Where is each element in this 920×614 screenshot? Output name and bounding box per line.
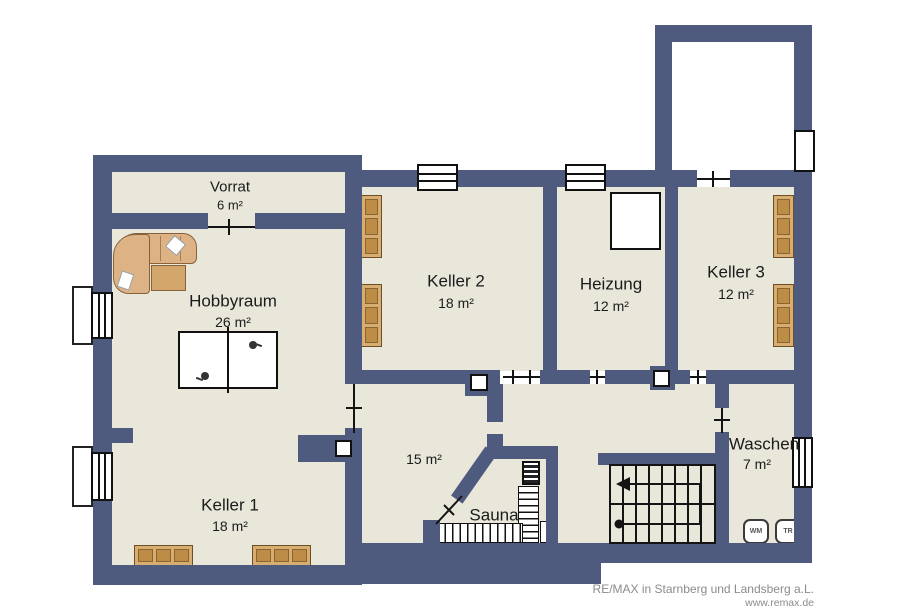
wall-sauna-right bbox=[546, 446, 558, 543]
room-label-vorrat: Vorrat bbox=[210, 180, 250, 195]
shelf-unit bbox=[134, 545, 193, 566]
wall-hall-top-b bbox=[540, 370, 590, 384]
wall-keller3-top-a bbox=[672, 170, 697, 187]
boiler-unit bbox=[610, 192, 661, 250]
wall-hall-top-d bbox=[675, 370, 690, 384]
shelf-unit bbox=[361, 195, 382, 258]
room-area-keller1: 18 m² bbox=[212, 519, 248, 533]
light-well bbox=[72, 286, 93, 345]
room-label-keller3: Keller 3 bbox=[707, 264, 765, 281]
shelf-unit bbox=[252, 545, 311, 566]
room-label-waschen: Waschen bbox=[729, 436, 799, 453]
wall-outer-bottom-right bbox=[601, 543, 812, 563]
room-area-keller2: 18 m² bbox=[438, 296, 474, 310]
wall-outer-bottom-mid bbox=[345, 543, 601, 584]
room-area-heizung: 12 m² bbox=[593, 299, 629, 313]
wall-keller2-heizung bbox=[543, 187, 557, 370]
wall-stairs-top bbox=[598, 453, 717, 465]
footer-branding: RE/MAX in Starnberg und Landsberg a.L. w… bbox=[593, 582, 814, 610]
sauna-oven bbox=[522, 461, 540, 485]
wall-keller3-top-b bbox=[730, 170, 794, 187]
light-well bbox=[72, 446, 93, 507]
wall-waschen-left-a bbox=[715, 384, 729, 408]
wall-outer-bottom-left bbox=[93, 565, 362, 585]
wall-heizung-keller3 bbox=[665, 187, 678, 370]
shelf-unit bbox=[361, 284, 382, 347]
wall-stub-left bbox=[110, 428, 133, 443]
duct-square bbox=[470, 374, 488, 391]
wall-hall-top-a bbox=[345, 370, 465, 384]
window-top-1 bbox=[417, 164, 458, 191]
room-label-sauna: Sauna bbox=[469, 507, 518, 524]
wall-sauna-entry-stub bbox=[423, 520, 440, 545]
table-tennis-net-line bbox=[227, 327, 229, 393]
dryer-label: TR bbox=[783, 528, 792, 535]
room-area-waschen: 7 m² bbox=[743, 457, 771, 471]
window-top-2 bbox=[565, 164, 606, 191]
window-left-2 bbox=[91, 452, 113, 501]
room-area-keller3: 12 m² bbox=[718, 287, 754, 301]
wall-sauna-left-a bbox=[487, 384, 503, 422]
wall-tower-top bbox=[655, 25, 812, 42]
wall-hall-top-e bbox=[706, 370, 794, 384]
duct-square bbox=[653, 370, 670, 387]
wall-vorrat-bottom-b bbox=[255, 213, 345, 229]
wall-tower-left bbox=[655, 25, 672, 187]
wall-hall-top-c bbox=[605, 370, 650, 384]
room-label-hobbyraum: Hobbyraum bbox=[189, 293, 277, 310]
wall-vorrat-right bbox=[345, 155, 362, 384]
footer-agency-line: RE/MAX in Starnberg und Landsberg a.L. bbox=[593, 582, 814, 597]
coffee-table bbox=[151, 265, 186, 291]
wall-outer-top-vorrat bbox=[93, 155, 362, 172]
wall-outer-top-mid bbox=[345, 170, 672, 187]
room-label-keller2: Keller 2 bbox=[427, 273, 485, 290]
window-left-1 bbox=[91, 292, 113, 339]
door-tower-right bbox=[794, 130, 815, 172]
room-label-keller1: Keller 1 bbox=[201, 497, 259, 514]
shelf-unit bbox=[773, 284, 794, 347]
sofa-cushion-line bbox=[160, 236, 161, 261]
washing-machine: WM bbox=[743, 519, 769, 544]
basement-floor-plan: WM TR bbox=[0, 0, 920, 614]
sauna-bench-bottom bbox=[430, 523, 523, 543]
room-area-hobbyraum: 26 m² bbox=[215, 315, 251, 329]
room-area-flur: 15 m² bbox=[406, 452, 442, 466]
room-label-heizung: Heizung bbox=[580, 276, 642, 293]
washing-machine-label: WM bbox=[750, 528, 762, 535]
footer-url: www.remax.de bbox=[593, 597, 814, 610]
shelf-unit bbox=[773, 195, 794, 258]
wall-waschen-left-b bbox=[715, 432, 729, 543]
wall-vorrat-bottom-a bbox=[110, 213, 208, 229]
duct-square bbox=[335, 440, 352, 457]
room-area-vorrat: 6 m² bbox=[217, 199, 243, 212]
